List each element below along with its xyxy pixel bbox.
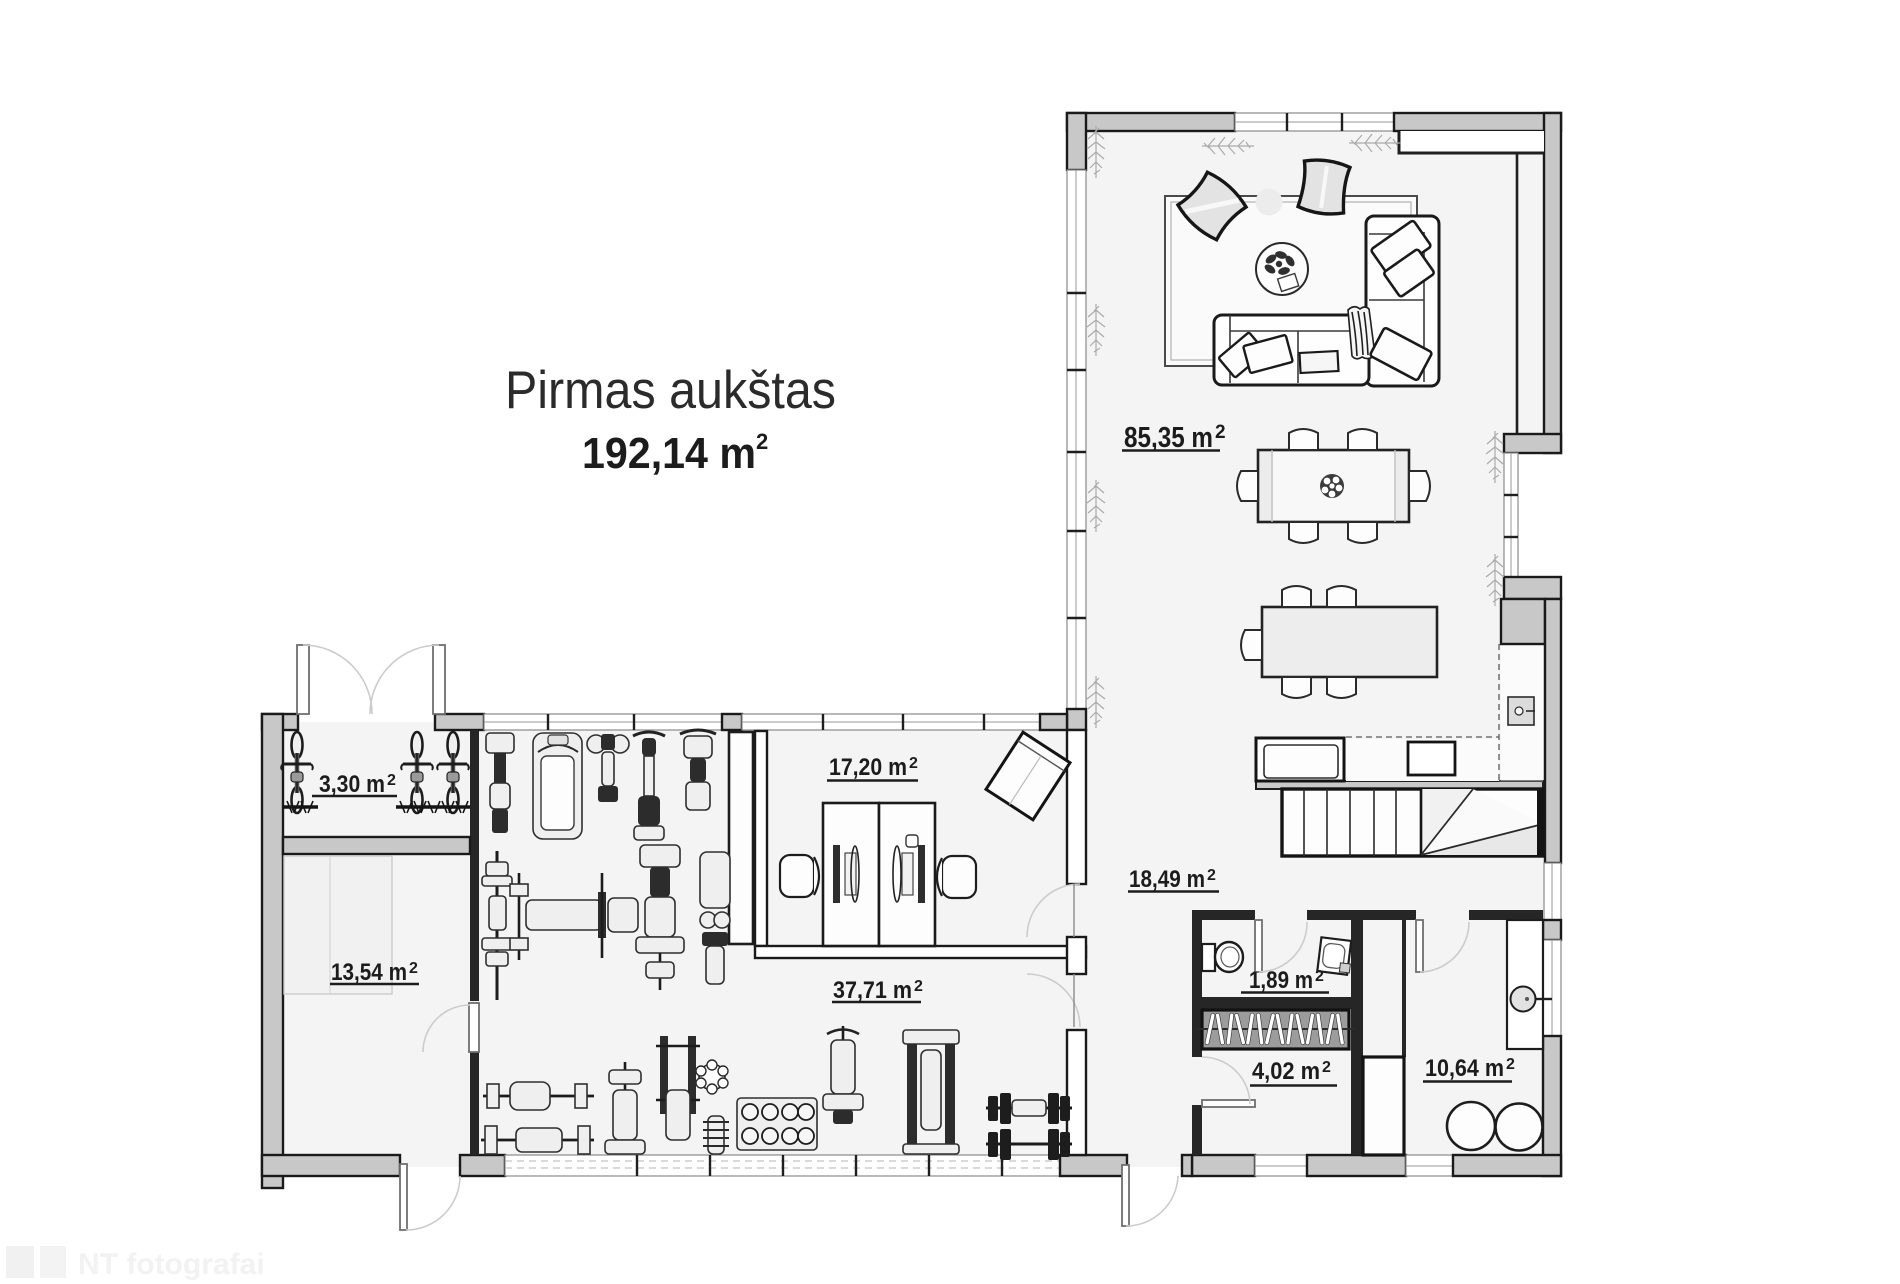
svg-text:2: 2 <box>1322 1059 1331 1076</box>
svg-text:37,71 m: 37,71 m <box>833 977 912 1004</box>
svg-text:13,54 m: 13,54 m <box>331 959 407 986</box>
svg-text:3,30 m: 3,30 m <box>319 771 385 798</box>
svg-text:NT fotografai: NT fotografai <box>78 1248 265 1281</box>
svg-text:2: 2 <box>914 978 923 995</box>
svg-text:2: 2 <box>756 429 768 454</box>
svg-text:2: 2 <box>1207 867 1216 884</box>
svg-text:2: 2 <box>909 755 918 772</box>
svg-text:2: 2 <box>1506 1056 1515 1073</box>
svg-text:2: 2 <box>409 960 418 977</box>
svg-text:Pirmas aukštas: Pirmas aukštas <box>505 361 836 420</box>
svg-text:192,14 m: 192,14 m <box>582 429 756 478</box>
svg-text:1,89 m: 1,89 m <box>1249 967 1313 994</box>
svg-text:18,49 m: 18,49 m <box>1129 866 1205 893</box>
svg-text:4,02 m: 4,02 m <box>1252 1058 1320 1085</box>
svg-text:2: 2 <box>1315 968 1324 985</box>
svg-text:17,20 m: 17,20 m <box>829 754 907 781</box>
svg-text:10,64 m: 10,64 m <box>1425 1055 1504 1082</box>
svg-text:2: 2 <box>387 772 396 789</box>
svg-text:2: 2 <box>1215 422 1226 443</box>
